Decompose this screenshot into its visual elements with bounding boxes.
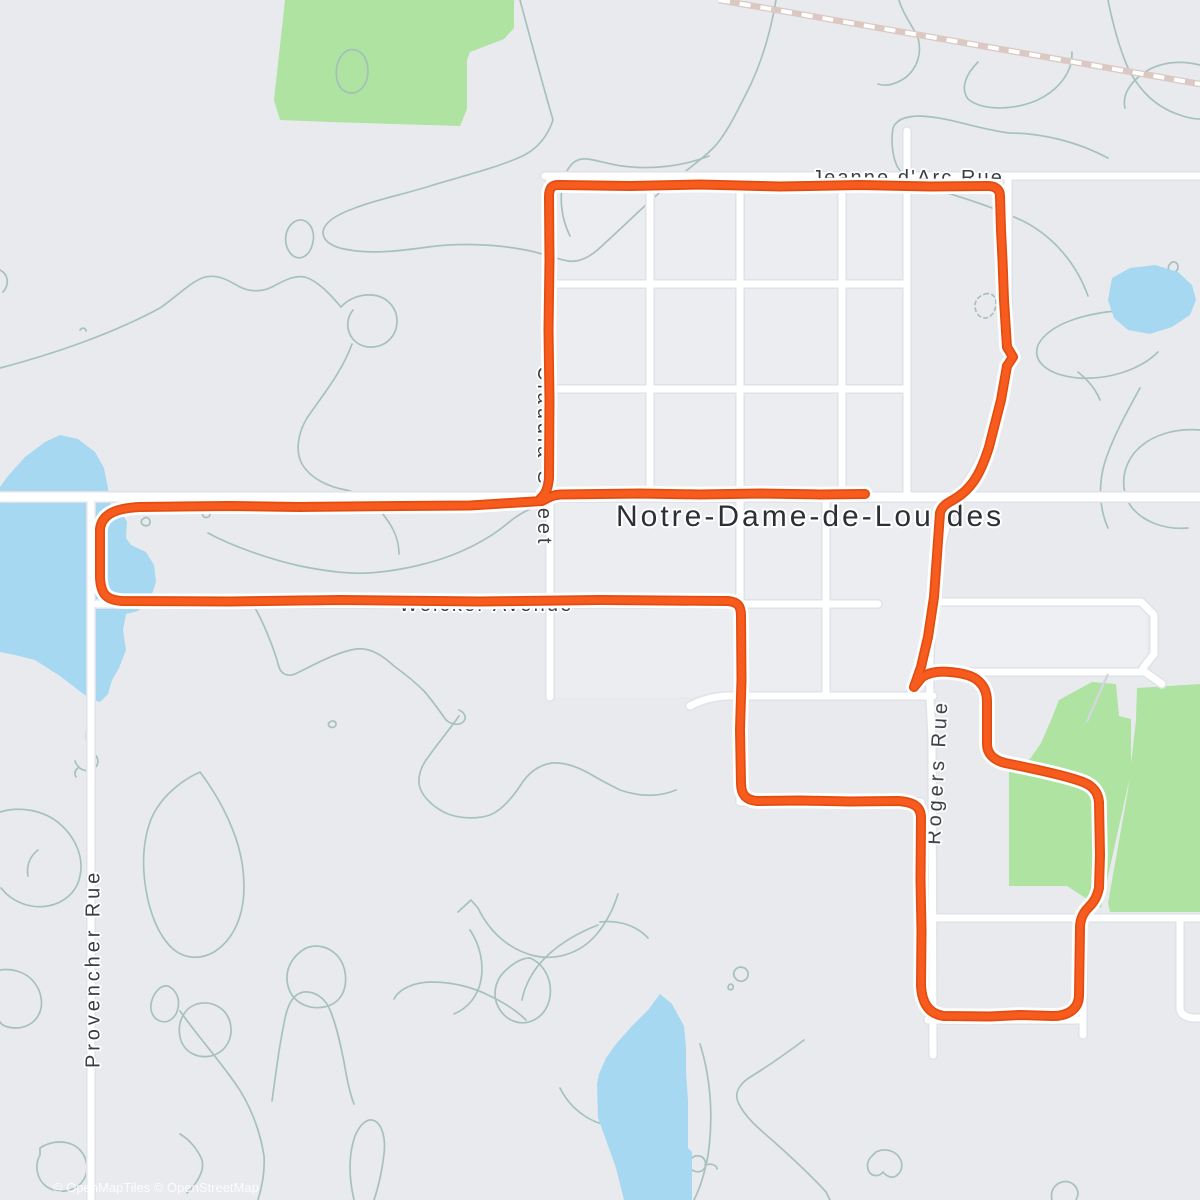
svg-text:© OpenMapTiles © OpenStreetMap: © OpenMapTiles © OpenStreetMap — [53, 1180, 259, 1195]
svg-text:Provencher Rue: Provencher Rue — [83, 869, 105, 1068]
